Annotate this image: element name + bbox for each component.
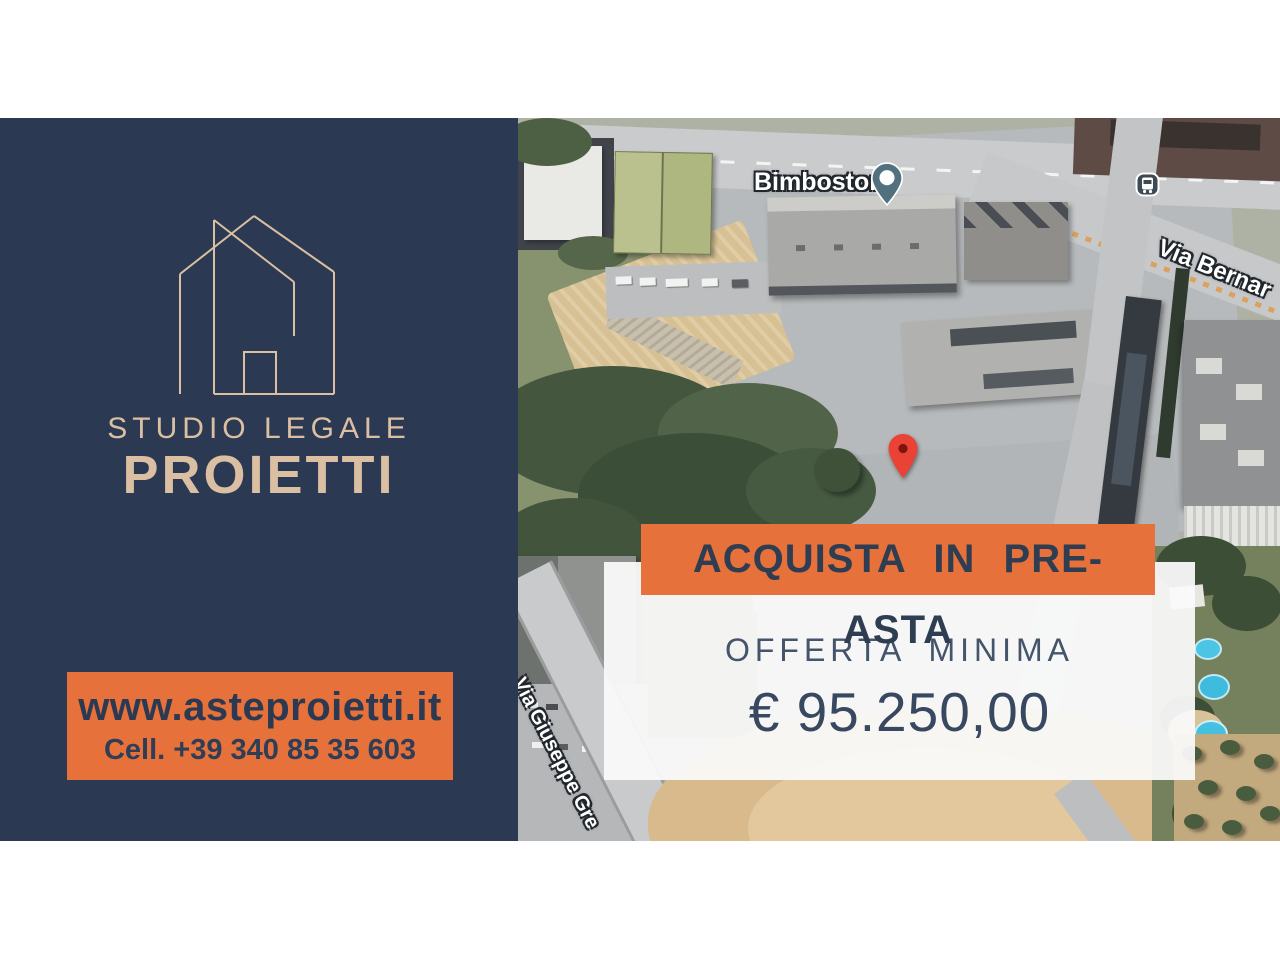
map-building xyxy=(964,202,1068,280)
property-location-pin-icon xyxy=(887,433,919,479)
map-tree xyxy=(814,448,860,492)
brand-name-line1: STUDIO LEGALE xyxy=(0,412,518,446)
bimbostore-map-pin-icon xyxy=(870,162,904,206)
map-building xyxy=(613,151,713,255)
pre-asta-banner: ACQUISTA IN PRE-ASTA xyxy=(641,524,1155,595)
map-pool xyxy=(1198,674,1230,700)
map-building xyxy=(767,194,957,295)
website-text: www.asteproietti.it xyxy=(67,685,453,730)
map-parking-row xyxy=(605,261,782,319)
contact-box: www.asteproietti.it Cell. +39 340 85 35 … xyxy=(67,672,453,780)
map-building xyxy=(1073,118,1280,182)
map-pool xyxy=(1194,638,1222,660)
map-building xyxy=(901,309,1098,406)
flyer-content: STUDIO LEGALE PROIETTI www.asteproietti.… xyxy=(0,118,1280,841)
flyer-page: STUDIO LEGALE PROIETTI www.asteproietti.… xyxy=(0,0,1280,960)
bus-station-icon xyxy=(1135,172,1160,197)
offer-amount: € 95.250,00 xyxy=(604,680,1195,744)
satellite-map: Bimbostore Via Bernar Via Giuseppe Gre O… xyxy=(518,118,1280,841)
phone-text: Cell. +39 340 85 35 603 xyxy=(67,734,453,767)
brand-panel: STUDIO LEGALE PROIETTI www.asteproietti.… xyxy=(0,118,518,841)
studio-logo-house-icon xyxy=(172,204,342,400)
map-building xyxy=(1184,320,1280,506)
brand-name-line2: PROIETTI xyxy=(0,444,518,506)
